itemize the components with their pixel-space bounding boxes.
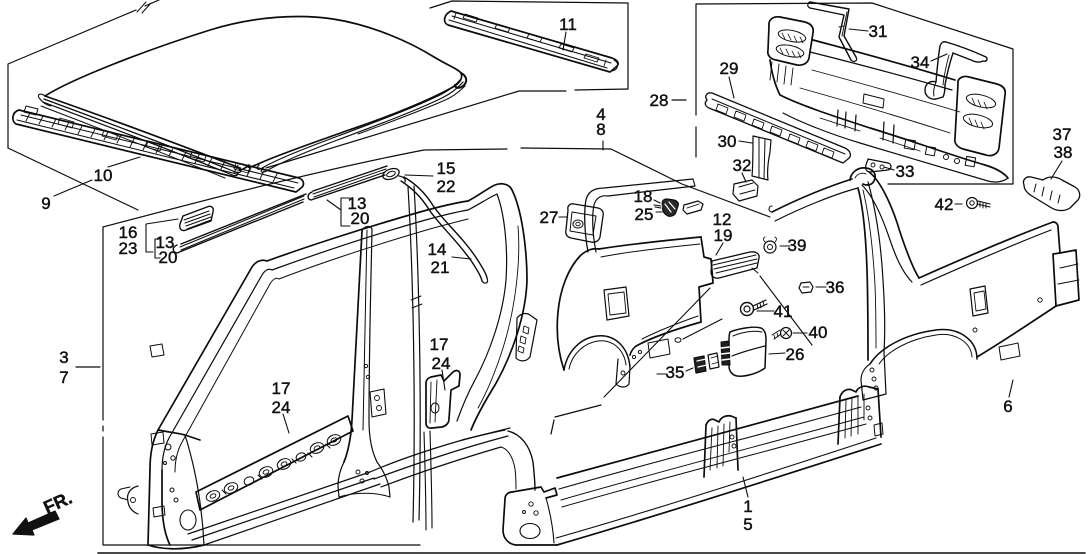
svg-text:39: 39 [788,236,807,255]
svg-text:11: 11 [559,15,577,34]
svg-text:24: 24 [272,398,291,417]
svg-text:20: 20 [159,248,178,267]
svg-text:5: 5 [743,515,752,534]
svg-text:6: 6 [1003,397,1012,416]
svg-text:32: 32 [733,156,752,175]
svg-text:28: 28 [650,91,669,110]
svg-text:31: 31 [869,22,888,41]
svg-text:33: 33 [896,162,915,181]
svg-text:38: 38 [1054,143,1073,162]
svg-text:40: 40 [809,323,828,342]
svg-text:23: 23 [119,239,138,258]
svg-text:8: 8 [596,120,605,139]
svg-text:20: 20 [351,209,370,228]
svg-text:7: 7 [59,368,68,387]
svg-text:42: 42 [935,195,954,214]
svg-text:21: 21 [431,258,450,277]
svg-text:37: 37 [1053,125,1072,144]
svg-text:25: 25 [635,205,654,224]
svg-text:3: 3 [59,348,68,367]
svg-text:30: 30 [718,132,737,151]
svg-text:10: 10 [94,166,113,185]
svg-text:FR.: FR. [40,488,75,518]
svg-text:18: 18 [634,187,653,206]
svg-text:35: 35 [666,363,685,382]
svg-text:27: 27 [540,208,559,227]
svg-text:26: 26 [786,345,805,364]
svg-text:41: 41 [774,302,793,321]
svg-text:17: 17 [272,379,291,398]
svg-text:36: 36 [826,278,845,297]
svg-text:17: 17 [430,335,449,354]
svg-text:1: 1 [743,497,752,516]
svg-text:19: 19 [714,226,733,245]
svg-text:15: 15 [437,159,456,178]
svg-text:24: 24 [432,354,451,373]
svg-text:14: 14 [428,240,447,259]
svg-text:34: 34 [911,53,930,72]
svg-text:29: 29 [720,59,739,78]
svg-text:9: 9 [41,194,50,213]
svg-text:22: 22 [437,177,456,196]
